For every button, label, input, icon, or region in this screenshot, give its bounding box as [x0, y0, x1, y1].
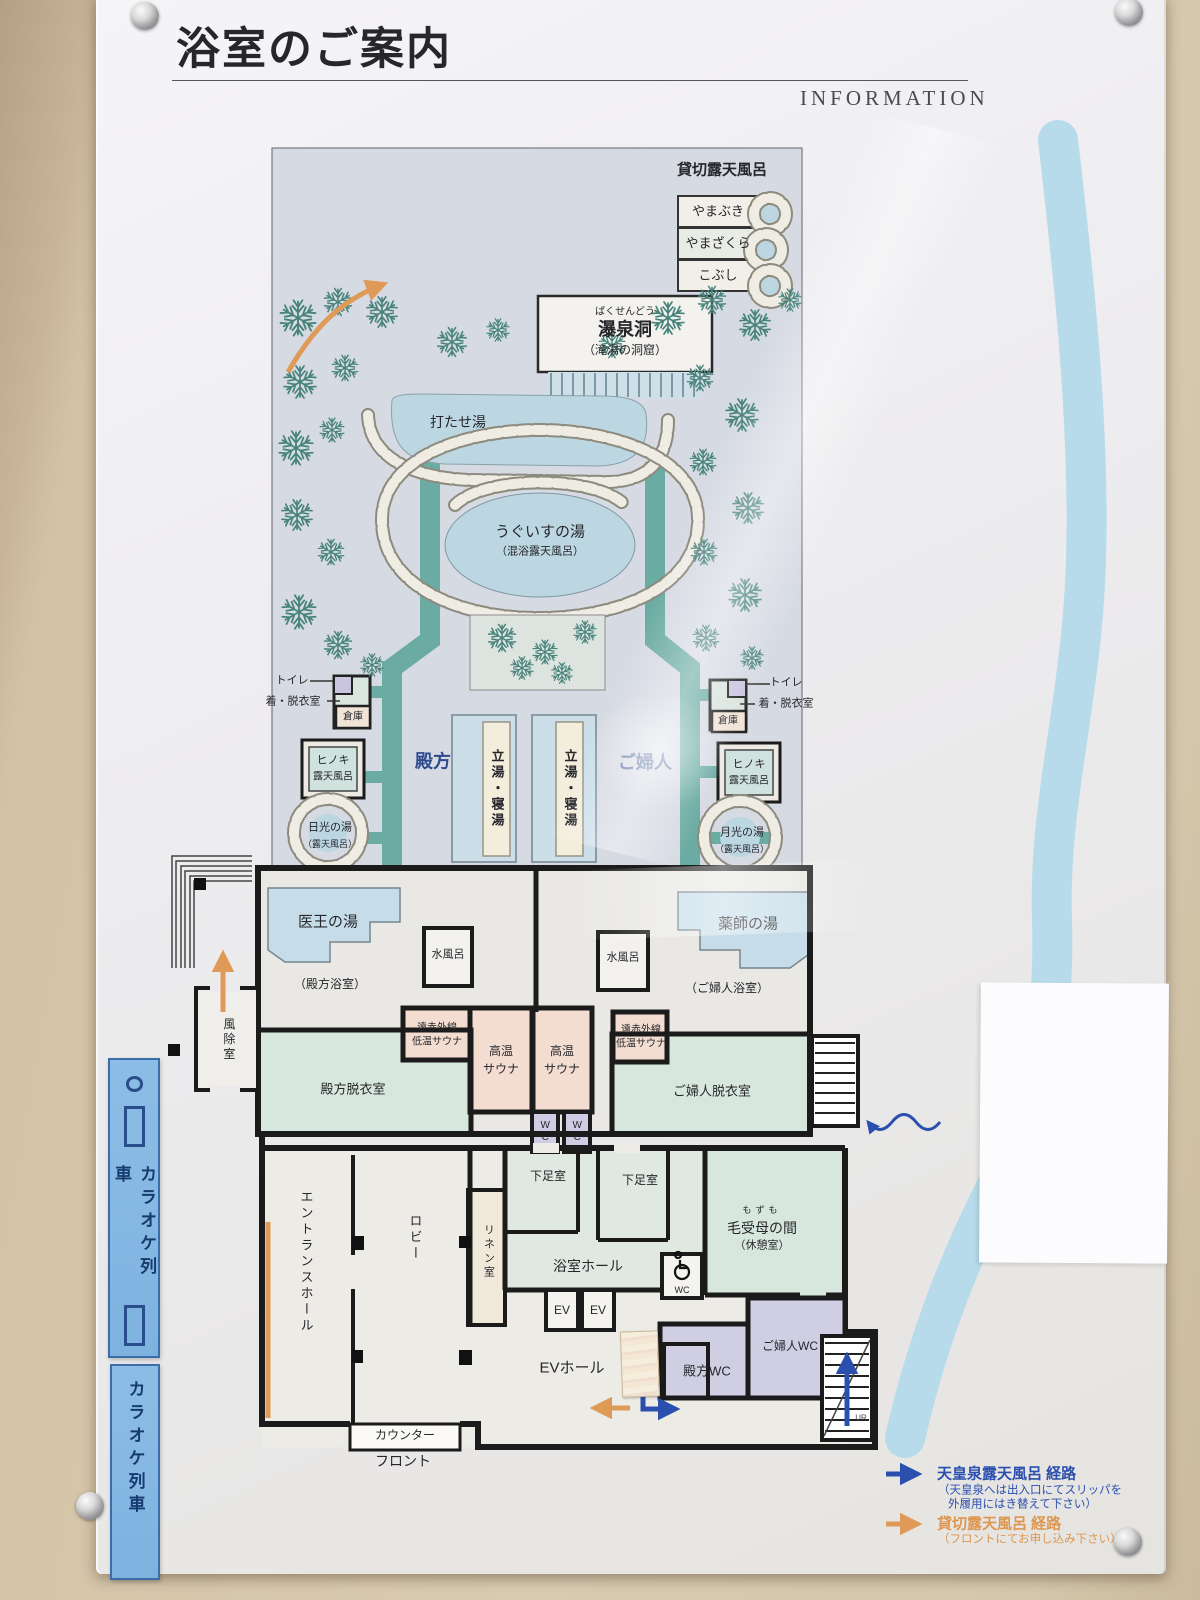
label-gesoku-men: 下足室: [530, 1170, 566, 1184]
label-toilet-left: トイレ: [276, 675, 309, 688]
label-mozumo-furigana: もずも: [742, 1205, 781, 1215]
karaoke-banner-text: カラオケ列車: [109, 1165, 159, 1287]
stairs-northeast: [812, 1036, 858, 1126]
label-storage-left: 倉庫: [343, 711, 363, 723]
label-gekko-note: （露天風呂）: [715, 844, 769, 854]
label-accessible-wc: WC: [675, 1285, 690, 1295]
label-hinoki-right-2: 露天風呂: [729, 775, 769, 787]
label-ev-1: EV: [554, 1304, 570, 1318]
train-window-icon: [124, 1106, 145, 1147]
room-far-infrared-sauna-women: [613, 1012, 667, 1062]
label-bakusendo-note: （滝湯の洞窟）: [583, 344, 667, 358]
label-iou: 医王の湯: [298, 913, 358, 930]
label-hot-sauna-men-2: サウナ: [483, 1063, 519, 1077]
label-ev-hall: EVホール: [539, 1359, 604, 1376]
label-far-sauna-men-1: 遠赤外線: [417, 1022, 457, 1034]
room-far-infrared-sauna-men: [403, 1008, 470, 1060]
label-front-desk: フロント: [375, 1453, 431, 1469]
photo-of-information-sign: カラオケ列車 カラオケ列車 浴室のご案内 INFORMATION 貸切露天風呂 …: [0, 0, 1200, 1600]
paper-patch: [979, 982, 1169, 1263]
train-light-icon: [126, 1076, 143, 1092]
label-toilet-right: トイレ: [770, 677, 803, 690]
legend-blue-note-2: 外履用にはき替えて下さい）: [948, 1498, 1097, 1511]
label-far-sauna-women-1: 遠赤外線: [621, 1024, 661, 1036]
label-mozumo: 毛受母の間: [727, 1220, 797, 1236]
page-title: 浴室のご案内: [176, 25, 452, 76]
mounting-screw: [76, 1492, 104, 1520]
label-bath-yamabuki: やまぶき: [692, 205, 744, 220]
label-counter: カウンター: [375, 1429, 435, 1443]
stairs-northwest: [172, 856, 252, 968]
label-bath-hall: 浴室ホール: [553, 1258, 623, 1274]
waterfall: [548, 372, 702, 398]
label-bath-yamazakura: やまざくら: [685, 237, 750, 252]
label-women-wc: ご婦人WC: [762, 1340, 818, 1354]
label-hinoki-left-2: 露天風呂: [313, 771, 353, 783]
label-men-wc: 殿方WC: [683, 1365, 731, 1380]
legend-blue-label: 天皇泉露天風呂 経路: [937, 1465, 1076, 1482]
label-gesoku-women: 下足室: [622, 1174, 658, 1188]
label-women-dressing: ご婦人脱衣室: [673, 1085, 751, 1100]
label-mozumo-note: （休憩室）: [735, 1240, 790, 1253]
label-uguisu: うぐいすの湯: [495, 523, 585, 540]
label-entrance-hall: エントランスホール: [298, 1190, 313, 1334]
label-mizuburo-women: 水風呂: [607, 952, 640, 965]
label-mizuburo-men: 水風呂: [432, 949, 465, 962]
decorative-paper: [620, 1330, 660, 1397]
room-hot-sauna-men: [470, 1008, 532, 1112]
label-linen: リネン室: [482, 1224, 495, 1280]
label-hot-sauna-men-1: 高温: [489, 1045, 513, 1059]
label-bakusendo-furigana: ばくせんどう: [595, 306, 655, 318]
label-tachiyu-women: 立湯・寝湯: [562, 749, 577, 829]
label-kashikiri-title: 貸切露天風呂: [677, 161, 767, 178]
train-window-icon: [124, 1305, 145, 1346]
mounting-screw: [131, 2, 159, 30]
label-bath-kobushi: こぶし: [698, 269, 737, 284]
label-storage-right: 倉庫: [718, 715, 738, 727]
label-yakushi: 薬師の湯: [718, 915, 778, 932]
label-lobby: ロビー: [407, 1214, 422, 1262]
karaoke-banner-text: カラオケ列車: [123, 1380, 148, 1518]
mounting-screw: [1114, 1528, 1142, 1556]
label-dressing-right: 着・脱衣室: [759, 698, 814, 711]
label-stairs-mark: UR: [855, 1413, 867, 1422]
label-nikko-note: （露天風呂）: [303, 839, 357, 849]
label-nikko: 日光の湯: [308, 822, 352, 835]
label-utaseyu: 打たせ湯: [430, 414, 486, 430]
label-gekko: 月光の湯: [720, 827, 764, 840]
label-uguisu-note: （混浴露天風呂）: [496, 546, 584, 559]
label-far-sauna-men-2: 低温サウナ: [412, 1036, 462, 1048]
label-women-bath-note: （ご婦人浴室）: [685, 982, 769, 996]
label-men-dressing: 殿方脱衣室: [320, 1083, 385, 1098]
room-hot-sauna-women: [533, 1008, 592, 1112]
label-wc-men-small: WC: [539, 1120, 551, 1144]
label-dressing-left: 着・脱衣室: [266, 696, 321, 709]
karaoke-banner-1: カラオケ列車: [108, 1058, 160, 1358]
label-ev-2: EV: [590, 1304, 606, 1318]
label-windbreak: 風除室: [221, 1018, 235, 1063]
label-men-side: 殿方: [415, 752, 451, 773]
label-hot-sauna-women-1: 高温: [550, 1045, 574, 1059]
room-men-toilet: [660, 1324, 748, 1398]
stairs-southeast: [822, 1336, 872, 1440]
title-rule: [172, 80, 968, 81]
label-wc-women-small: WC: [571, 1120, 583, 1144]
label-men-bath-note: （殿方浴室）: [294, 978, 366, 992]
legend-blue-note-1: （天皇泉へは出入口にてスリッパを: [938, 1484, 1122, 1497]
legend-orange-label: 貸切露天風呂 経路: [937, 1515, 1061, 1532]
information-label: INFORMATION: [800, 86, 989, 110]
label-women-side: ご婦人: [618, 753, 672, 774]
legend-orange-note: （フロントにてお申し込み下さい）: [938, 1533, 1122, 1546]
label-hinoki-right-1: ヒノキ: [733, 759, 766, 772]
label-bakusendo: 瀑泉洞: [598, 320, 652, 341]
label-tachiyu-men: 立湯・寝湯: [489, 749, 504, 829]
label-hinoki-left-1: ヒノキ: [317, 755, 350, 768]
karaoke-banner-2: カラオケ列車: [110, 1364, 160, 1580]
label-far-sauna-women-2: 低温サウナ: [616, 1038, 666, 1050]
label-hot-sauna-women-2: サウナ: [544, 1063, 580, 1077]
